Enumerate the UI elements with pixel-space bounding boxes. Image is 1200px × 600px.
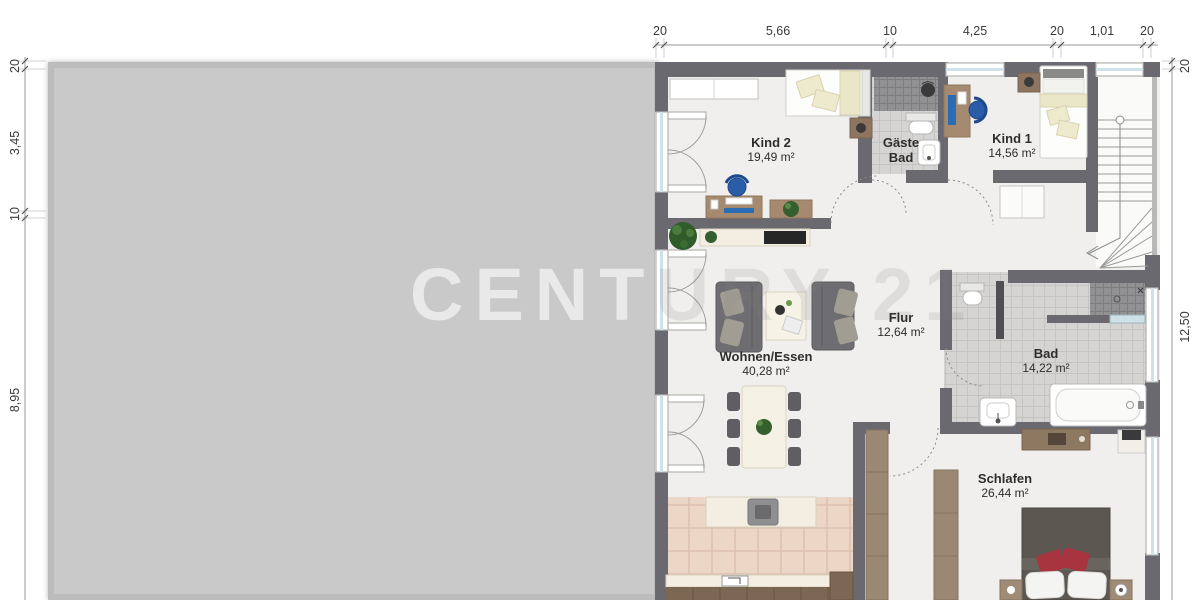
toilet [960,283,984,291]
kitchen-counter [666,572,853,600]
room-label-kind2: Kind 219,49 m² [747,136,794,164]
window-kind1-top [946,63,1004,76]
coffee-table [766,292,806,340]
dim-top-3: 4,25 [963,24,987,38]
schlafen-wardrobe-1 [866,430,888,600]
room-label-flur: Flur12,64 m² [877,311,924,339]
dim-left-0: 20 [8,59,22,73]
dim-top-0: 20 [653,24,667,38]
window-stairwell-top [1096,63,1143,76]
hall-closet [1000,186,1044,218]
tv-sideboard [700,229,810,246]
dim-top-2: 10 [883,24,897,38]
kind1-bed [1040,66,1087,158]
window-bad-right [1146,288,1158,382]
schlafen-wardrobe-2 [934,470,958,600]
plant-large [669,222,697,250]
room-label-gaeste-bad: Gäste Bad [877,136,925,165]
dim-top-6: 20 [1140,24,1154,38]
kind2-nightstand [850,118,872,138]
kitchen-island [706,497,816,527]
dim-left-2: 10 [8,207,22,221]
kind2-cabinet [770,200,812,218]
schlafen-sideboard [1022,429,1090,450]
radiator [996,281,1004,339]
dim-top-4: 20 [1050,24,1064,38]
dim-top-1: 5,66 [766,24,790,38]
schlafen-bench-left [1000,580,1022,600]
bad-shower [1090,283,1145,315]
room-label-bad: Bad14,22 m² [1022,347,1069,375]
room-label-wohnen-essen: Wohnen/Essen40,28 m² [720,350,813,378]
sofa-left [716,282,762,352]
sofa-right [812,282,859,350]
schlafen-bed [1022,508,1110,600]
kind1-nightstand [1018,73,1040,92]
dim-right-0: 20 [1178,59,1192,73]
room-label-schlafen: Schlafen26,44 m² [978,472,1032,500]
dim-left-1: 3,45 [8,131,22,155]
room-label-kind1: Kind 114,56 m² [988,132,1035,160]
dim-top-5: 1,01 [1090,24,1114,38]
toilet [906,113,936,121]
dim-left-3: 8,95 [8,388,22,412]
schlafen-bench-right [1110,580,1132,600]
schlafen-desk [1118,430,1145,453]
floorplan-drawing [0,0,1200,600]
kind2-wardrobe [670,79,758,99]
kind2-bed [786,70,870,116]
floorplan-page: CENTURY 21 CENTURY 21 Kind 219,49 m² Gäs… [0,0,1200,600]
window-schlafen-right [1146,437,1158,555]
dim-right-1: 12,50 [1178,311,1192,342]
dining-set [727,386,801,468]
